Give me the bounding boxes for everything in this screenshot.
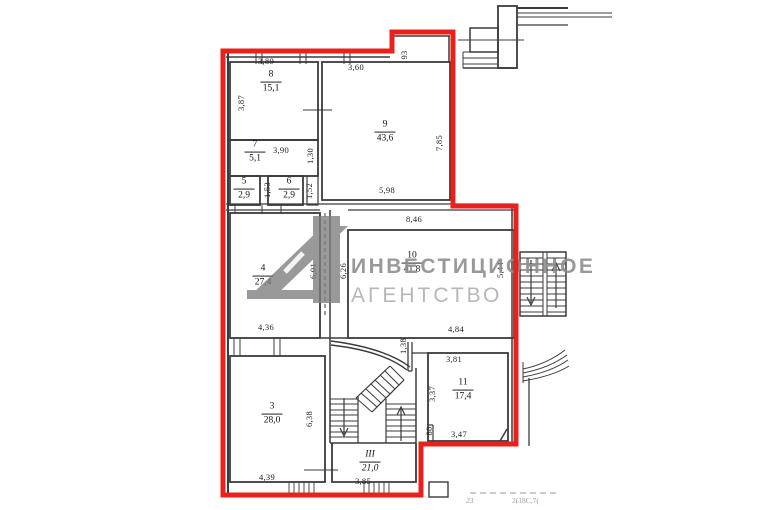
room-label-9: 943,6 [375,120,396,145]
dim-label: 6,01 [308,263,318,279]
room-label-6: 62,9 [279,177,300,202]
room-label-8: 815,1 [261,70,282,95]
dim-label: 3,85 [355,476,371,486]
room-label-7: 75,1 [245,140,266,165]
dim-label: 3,89 [258,56,274,66]
dim-label: 5,44 [495,262,505,278]
dim-label: 93 [399,50,409,59]
dim-label: 5,98 [379,185,395,195]
dim-label: 3,60 [348,62,364,72]
dim-label: 1,53 [262,182,272,198]
dim-label: 8,46 [406,214,422,224]
scan-footer-code: 2(18С,7( [512,496,539,505]
dim-label: 4,36 [258,322,274,332]
room-label-10: 1041,8 [402,251,423,276]
dim-label: 4,84 [448,324,464,334]
dim-label: 3,47 [451,429,467,439]
dim-label: 6,38 [304,411,314,427]
dim-label: 3,81 [446,354,462,364]
dim-label: 3,90 [273,145,289,155]
scan-footer-mark: 23 [466,496,474,505]
room-label-11: 1117,4 [453,378,474,403]
dim-label: 3,37 [427,386,437,402]
dim-label: 1,30 [305,148,315,164]
room-label-4: 427,4 [253,264,274,289]
dim-label: 3,87 [236,95,246,111]
room-label-3: 328,0 [262,402,283,427]
dim-label: 4,39 [259,472,275,482]
room-label-III: III21,0 [360,450,381,475]
dim-label: 6,26 [338,263,348,279]
room-label-5: 52,9 [234,177,255,202]
dim-label: 7,85 [434,135,444,151]
dim-label: 80 [424,426,434,435]
plan-labels: 815,1 943,6 75,1 52,9 62,9 427,4 1041,8 … [0,0,770,510]
dim-label: 1,38 [398,338,408,354]
floorplan-canvas: 815,1 943,6 75,1 52,9 62,9 427,4 1041,8 … [0,0,770,510]
dim-label: 1,52 [304,183,314,199]
